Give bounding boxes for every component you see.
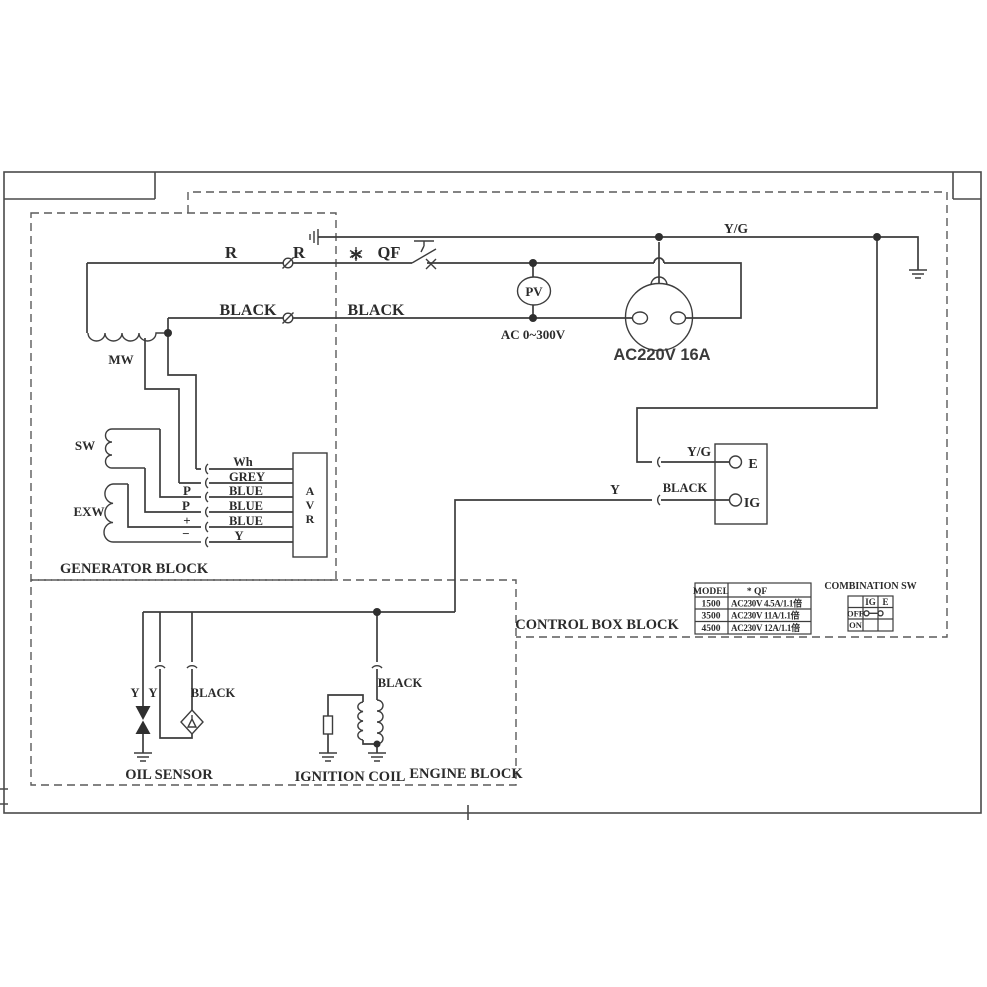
sw-coil	[106, 429, 160, 468]
sw-label: SW	[75, 438, 95, 453]
ground-symbol-right	[909, 270, 927, 278]
wire-label-yg-top: Y/G	[724, 221, 749, 236]
terminal-label-ig: IG	[744, 496, 760, 511]
avr-letter-r: R	[306, 512, 315, 526]
wire-label-yg-e: Y/G	[687, 444, 712, 459]
terminal-label-p1: P	[183, 483, 191, 498]
control-box-block-label: CONTROL BOX BLOCK	[515, 617, 679, 633]
wire-label-r1: R	[225, 243, 238, 262]
model-table: MODEL * QF 1500 3500 4500 AC230V 4.5A/1.…	[693, 583, 811, 634]
combination-sw-table: COMBINATION SW IG E OFF ON	[824, 581, 916, 631]
avr-letter-a: A	[306, 484, 315, 498]
wire-label-wh: Wh	[233, 455, 253, 469]
socket-label: AC220V 16A	[613, 346, 710, 364]
ignition-coil-label: IGNITION COIL	[295, 769, 406, 785]
sheet-border	[0, 172, 981, 820]
ground-symbol-resistor	[319, 753, 337, 761]
diode-up	[136, 721, 151, 735]
wire-label-blue2: BLUE	[229, 499, 263, 513]
bullet-connector-r	[283, 258, 294, 269]
model-cell-3500: 3500	[702, 612, 721, 622]
oil-sensor-symbol	[136, 706, 204, 734]
engine-block-border	[31, 580, 516, 785]
engine-block-label: ENGINE BLOCK	[409, 766, 523, 782]
qf-breaker	[412, 241, 436, 269]
terminal-label-e: E	[748, 457, 757, 472]
pv-label: PV	[525, 284, 543, 299]
model-table-header-qf: * QF	[747, 587, 768, 597]
ground-symbol-oil-sensor	[134, 753, 152, 761]
terminal-label-p2: P	[182, 498, 190, 513]
block-borders	[31, 192, 947, 785]
ignition-coil-symbol	[324, 700, 384, 744]
bullet-connector-black	[283, 313, 294, 324]
terminal-block	[715, 444, 767, 524]
wire-label-grey: GREY	[229, 470, 265, 484]
wire-label-black2: BLACK	[348, 302, 405, 319]
wire-label-blue1: BLUE	[229, 484, 263, 498]
secondary-winding	[377, 700, 383, 744]
exw-label: EXW	[73, 504, 104, 519]
ground-symbol-left	[310, 229, 318, 245]
wire-label-y-avr: Y	[234, 529, 243, 543]
model-cell-1500: 1500	[702, 600, 721, 610]
mw-coil	[88, 333, 168, 341]
model-cell-4500: 4500	[702, 624, 721, 634]
diode-down	[136, 706, 151, 720]
svg-text:*: *	[350, 246, 362, 272]
combination-sw-title: COMBINATION SW	[824, 581, 916, 592]
model-table-header-model: MODEL	[693, 587, 729, 597]
ground-symbol-coil	[368, 753, 386, 761]
wire-label-y-ig: Y	[610, 482, 620, 497]
float-switch-diamond	[181, 710, 203, 734]
resistor	[324, 716, 333, 734]
wire-label-black-ig: BLACK	[663, 481, 708, 495]
wire-label-r2: R	[293, 243, 306, 262]
terminal-label-minus: −	[182, 526, 189, 541]
generator-block-label: GENERATOR BLOCK	[60, 561, 209, 577]
wire-label-black-sensor: BLACK	[191, 686, 236, 700]
oil-sensor-label: OIL SENSOR	[125, 767, 213, 783]
wire-label-blue3: BLUE	[229, 514, 263, 528]
model-spec-3500: AC230V 11A/1.1倍	[731, 610, 800, 621]
avr-letter-v: V	[306, 498, 315, 512]
combination-row-on: ON	[849, 620, 863, 630]
wires	[87, 237, 918, 753]
pv-range-label: AC 0~300V	[501, 327, 566, 342]
model-spec-1500: AC230V 4.5A/1.1倍	[731, 598, 802, 609]
off-link-symbol	[864, 611, 883, 616]
breaker-asterisk-label: *	[350, 246, 362, 272]
combination-row-off: OFF	[847, 609, 864, 619]
wire-label-black-coil: BLACK	[378, 676, 423, 690]
breaker-label-qf: QF	[378, 243, 401, 262]
model-spec-4500: AC230V 12A/1.1倍	[731, 622, 800, 633]
primary-winding	[358, 702, 363, 740]
wire-label-y-sensor1: Y	[130, 686, 139, 700]
wire-label-black1: BLACK	[220, 302, 277, 319]
wiring-diagram-sheet: R R QF BLACK BLACK Y/G MW SW EXW Wh GREY…	[0, 0, 987, 987]
ac-socket	[626, 277, 693, 351]
wire-label-y-sensor2: Y	[148, 686, 157, 700]
combination-col-e: E	[882, 597, 888, 607]
mw-label: MW	[108, 352, 133, 367]
combination-col-ig: IG	[865, 597, 876, 607]
